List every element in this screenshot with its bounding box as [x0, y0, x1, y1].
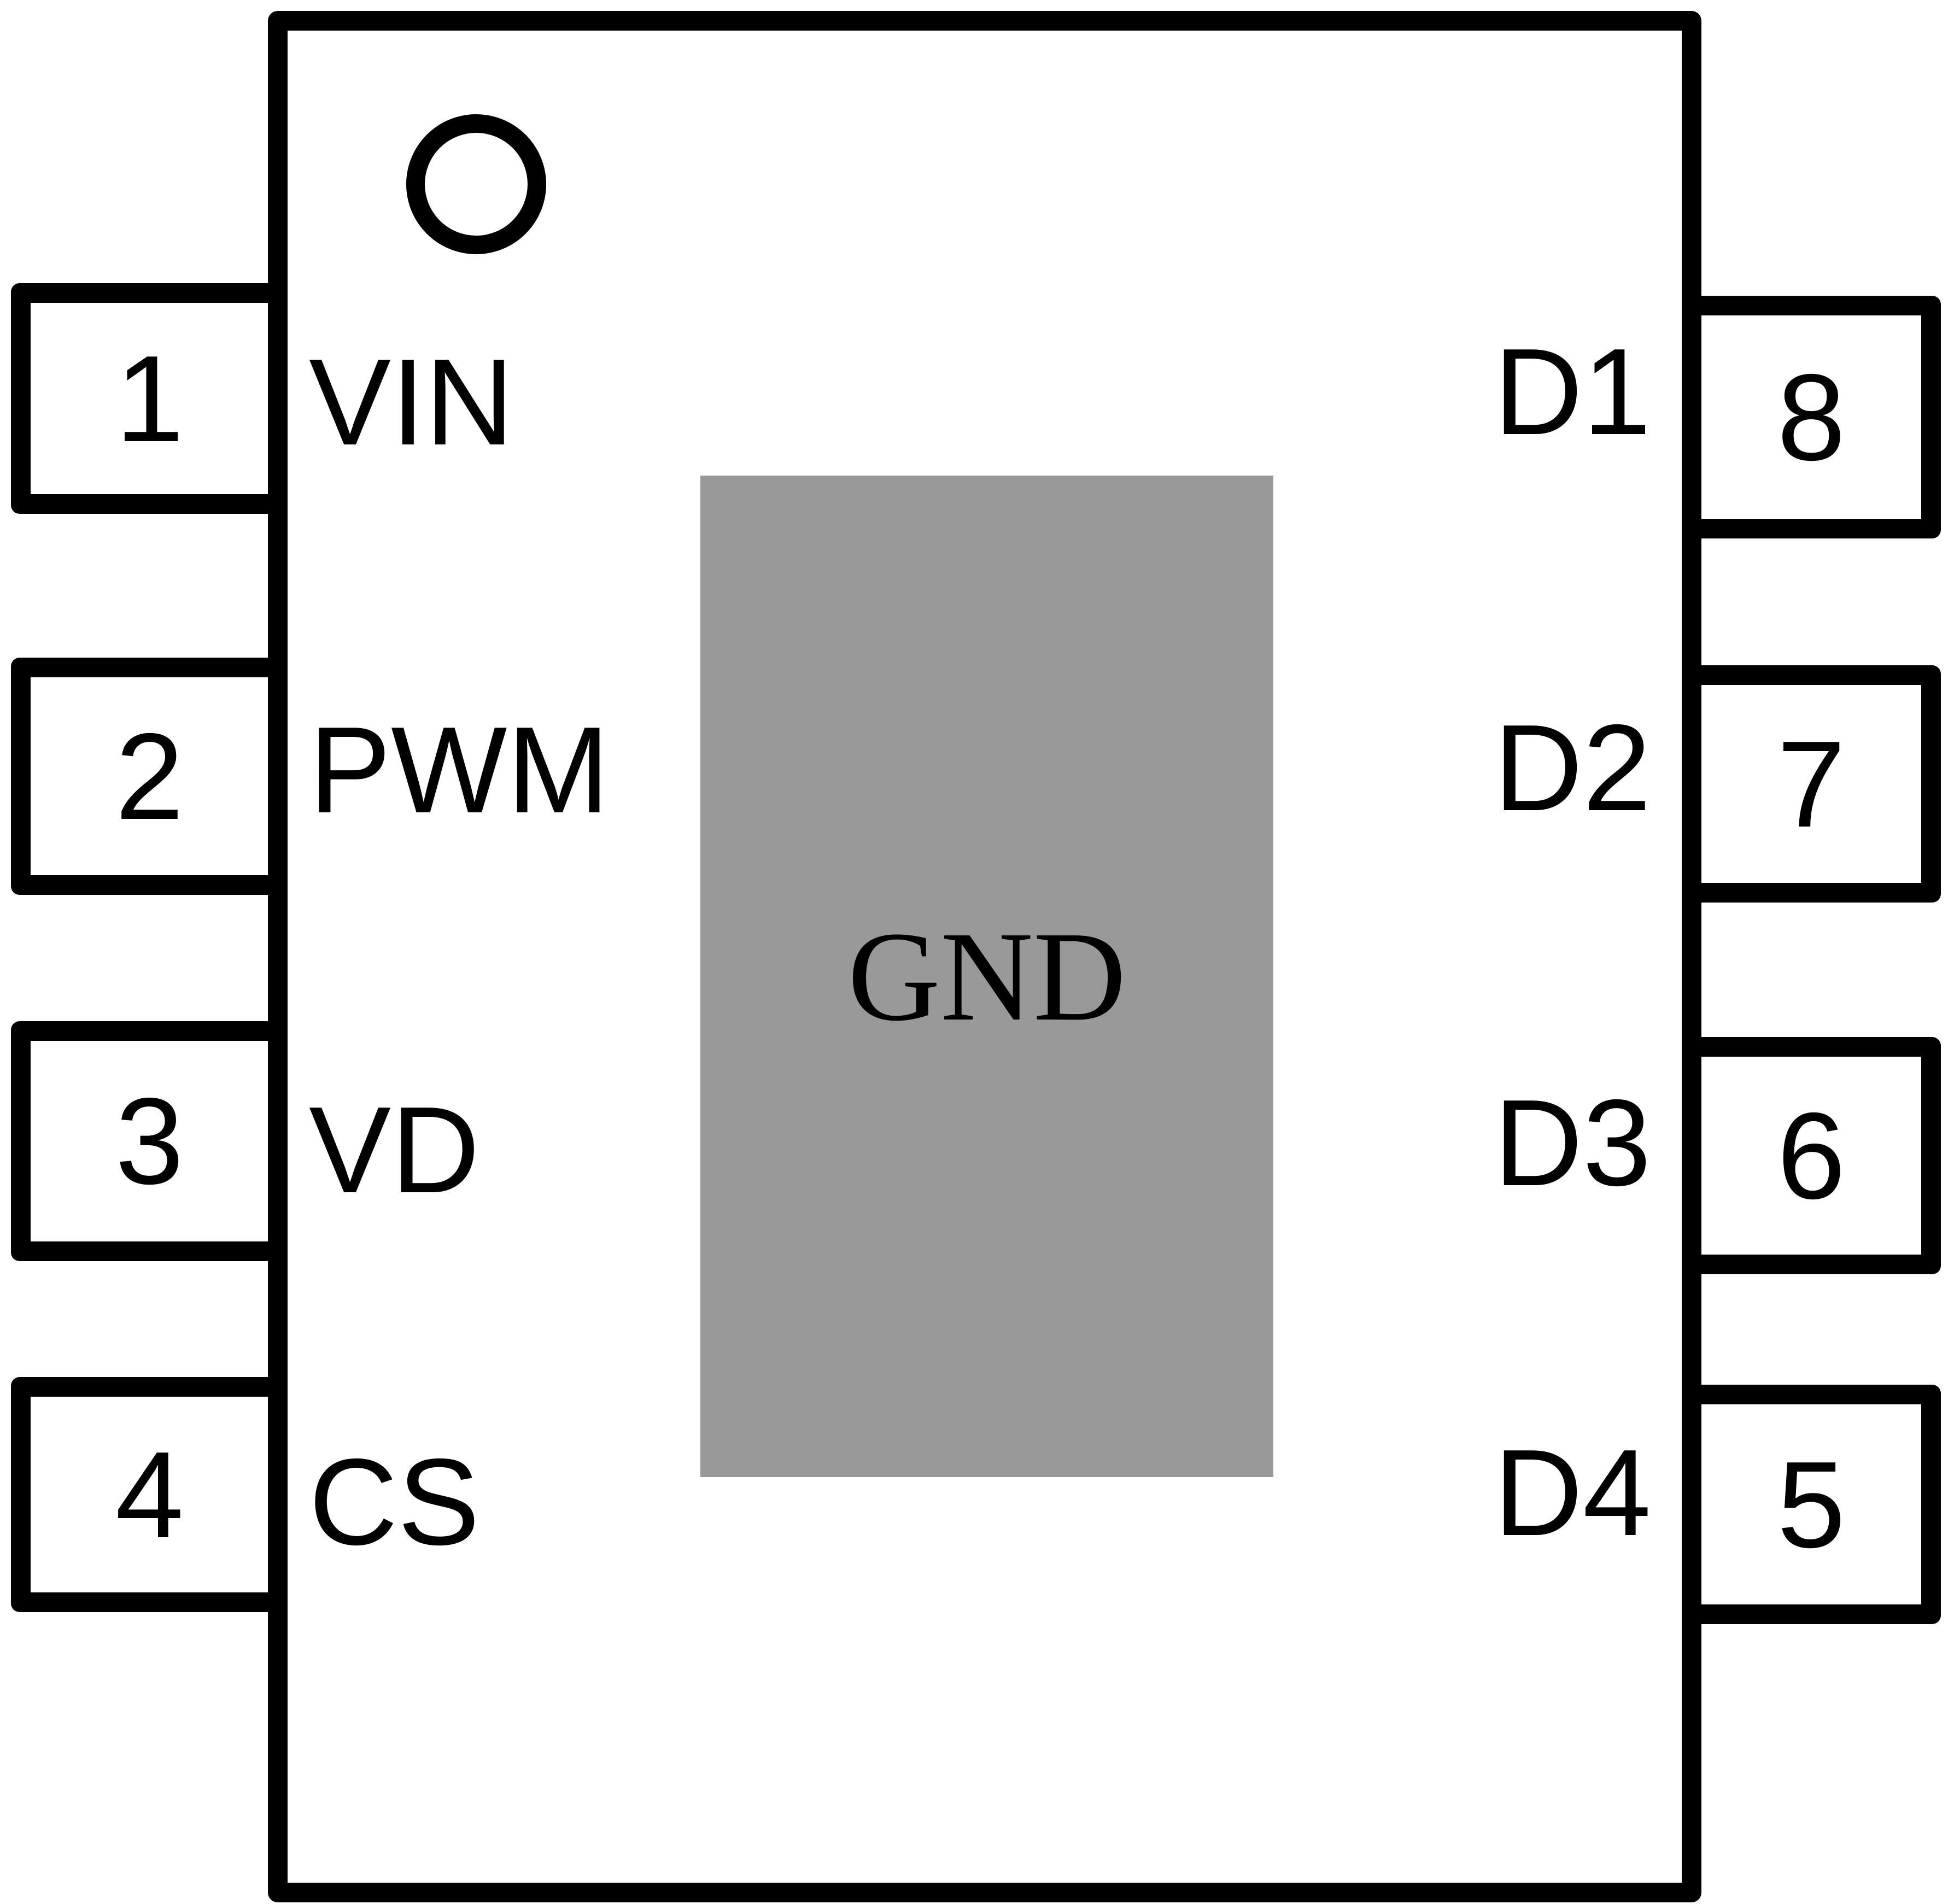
pin-number-3: 3 [115, 1080, 184, 1203]
gnd-label: GND [847, 912, 1126, 1041]
pin-box-3: 3 [11, 1021, 288, 1261]
pin-box-8: 8 [1682, 296, 1941, 538]
pin-box-2: 2 [11, 658, 288, 895]
pin-label-cs: CS [309, 1439, 480, 1565]
pin-label-d2: D2 [1494, 705, 1651, 830]
pin-box-5: 5 [1682, 1385, 1941, 1624]
pin-label-d1: D1 [1494, 329, 1651, 454]
pin1-indicator-icon [406, 114, 546, 254]
pin-label-vd: VD [309, 1087, 480, 1212]
pin-box-7: 7 [1682, 665, 1941, 903]
pin-box-1: 1 [11, 283, 288, 514]
pin-box-4: 4 [11, 1377, 288, 1612]
pin-number-2: 2 [115, 715, 184, 838]
pin-number-5: 5 [1777, 1443, 1845, 1566]
pin-label-d3: D3 [1494, 1080, 1651, 1205]
pin-number-7: 7 [1777, 723, 1845, 846]
pin-label-d4: D4 [1494, 1430, 1651, 1555]
pin-number-6: 6 [1777, 1094, 1845, 1217]
pin-number-1: 1 [115, 337, 184, 460]
pin-box-6: 6 [1682, 1037, 1941, 1274]
pin-label-vin: VIN [309, 339, 514, 465]
gnd-pad: GND [700, 476, 1273, 1477]
pin-label-pwm: PWM [309, 707, 610, 833]
pin-number-4: 4 [115, 1433, 184, 1556]
pin-number-8: 8 [1777, 356, 1845, 479]
pinout-diagram: 1 2 3 4 8 7 6 5 GND VIN PWM VD CS D1 D2 … [0, 0, 1954, 1904]
